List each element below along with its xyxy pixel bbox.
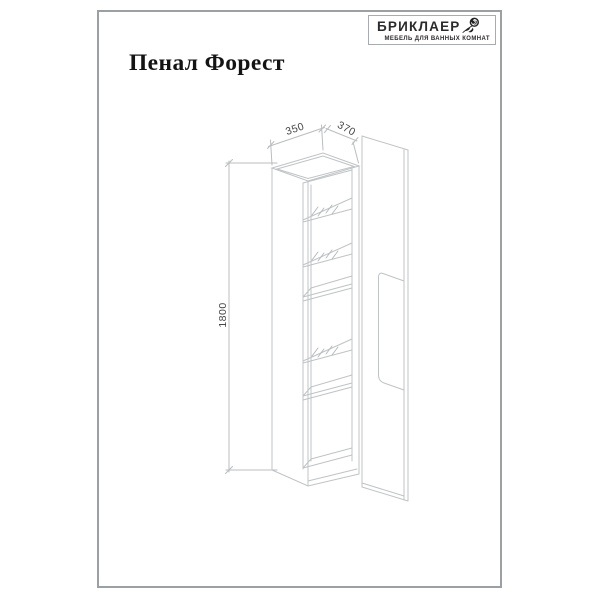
cabinet-door: [362, 136, 408, 501]
cabinet-technical-drawing: 1800 350 370: [0, 0, 600, 600]
dim-depth-label: 370: [335, 119, 357, 139]
dimension-width: 350: [268, 120, 326, 165]
cabinet-carcass: [272, 153, 359, 486]
solid-shelf-2: [303, 375, 352, 400]
glass-shelf-2: [303, 243, 352, 267]
dim-height-label: 1800: [217, 302, 229, 327]
door-handle-recess: [379, 273, 405, 390]
glass-shelf-1: [303, 198, 352, 222]
glass-shelf-3: [303, 339, 352, 363]
dimension-depth: 370: [325, 119, 359, 163]
solid-shelf-1: [303, 276, 352, 301]
catalog-page: Пенал Форест БРИКЛАЕР МЕБЕЛЬ ДЛЯ ВАННЫХ …: [0, 0, 600, 600]
dimension-height: 1800: [217, 160, 277, 474]
